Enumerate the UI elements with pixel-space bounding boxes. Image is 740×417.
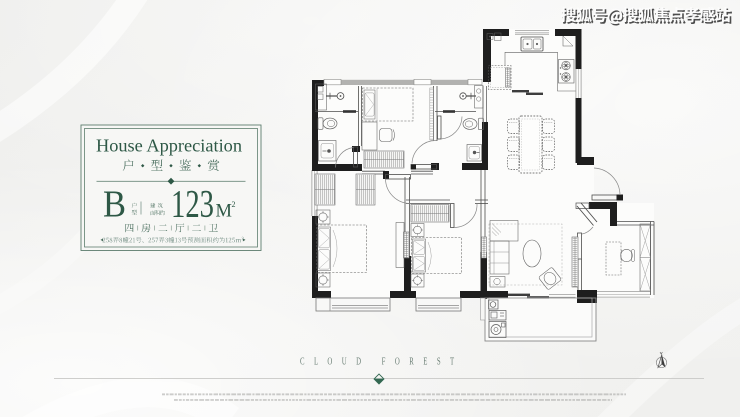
svg-text:123: 123	[171, 183, 214, 226]
svg-text:B: B	[103, 184, 126, 226]
svg-text:M: M	[216, 202, 232, 222]
svg-text:2: 2	[232, 200, 236, 209]
svg-text:House Appreciation: House Appreciation	[96, 136, 242, 156]
svg-text:C L O U D F O R E S T: C L O U D F O R E S T	[300, 357, 458, 368]
